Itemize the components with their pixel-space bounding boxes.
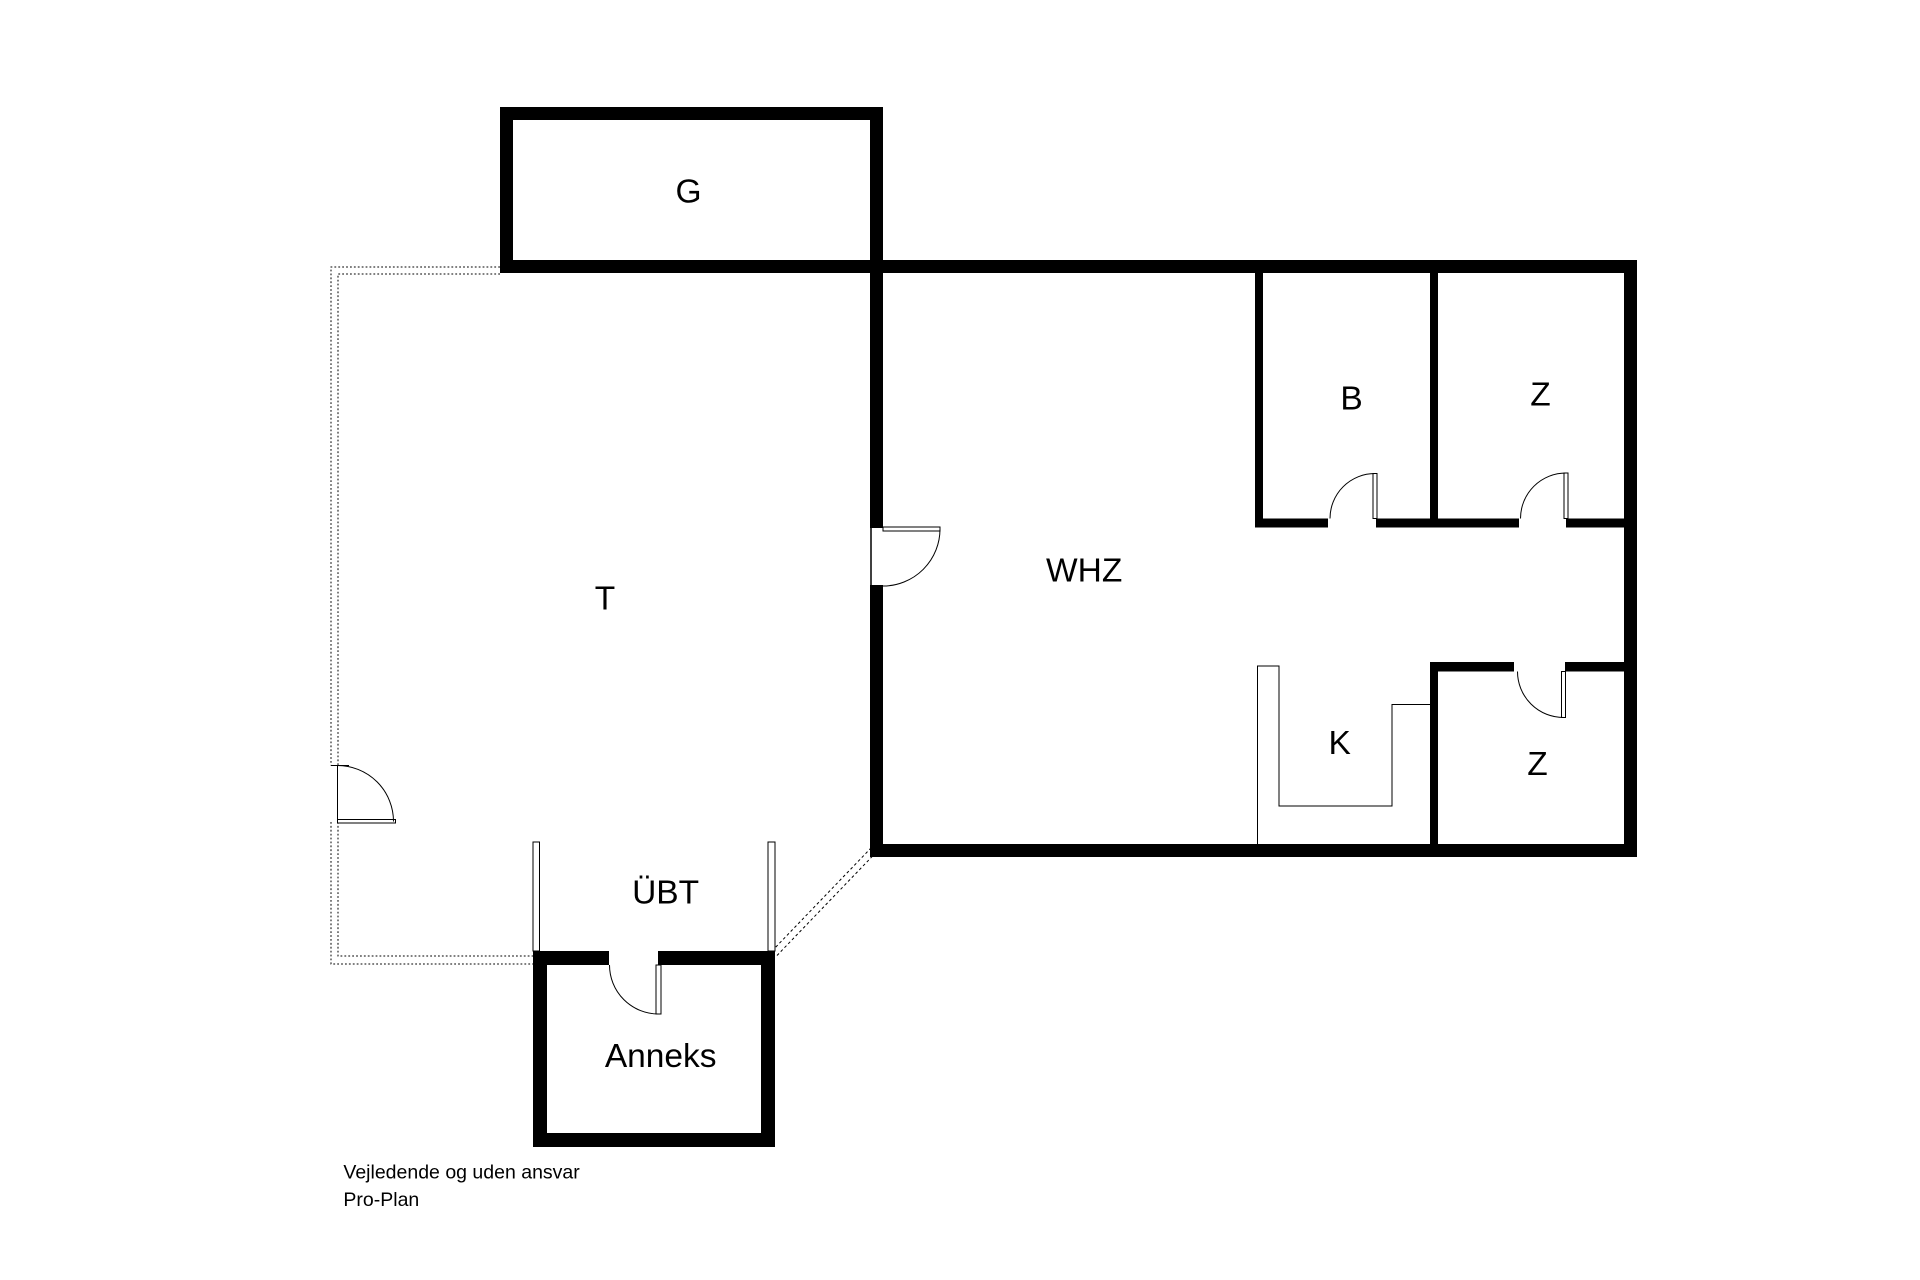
svg-text:G: G (675, 174, 701, 211)
svg-text:B: B (1340, 380, 1362, 417)
svg-text:ÜBT: ÜBT (632, 874, 699, 911)
svg-text:K: K (1329, 725, 1351, 762)
svg-text:T: T (595, 581, 615, 618)
svg-text:Z: Z (1530, 377, 1550, 414)
svg-text:Z: Z (1527, 746, 1547, 783)
svg-text:Vejledende og uden ansvar: Vejledende og uden ansvar (343, 1161, 580, 1183)
svg-text:Anneks: Anneks (605, 1038, 717, 1075)
svg-text:Pro-Plan: Pro-Plan (343, 1189, 419, 1211)
svg-text:WHZ: WHZ (1046, 552, 1122, 589)
